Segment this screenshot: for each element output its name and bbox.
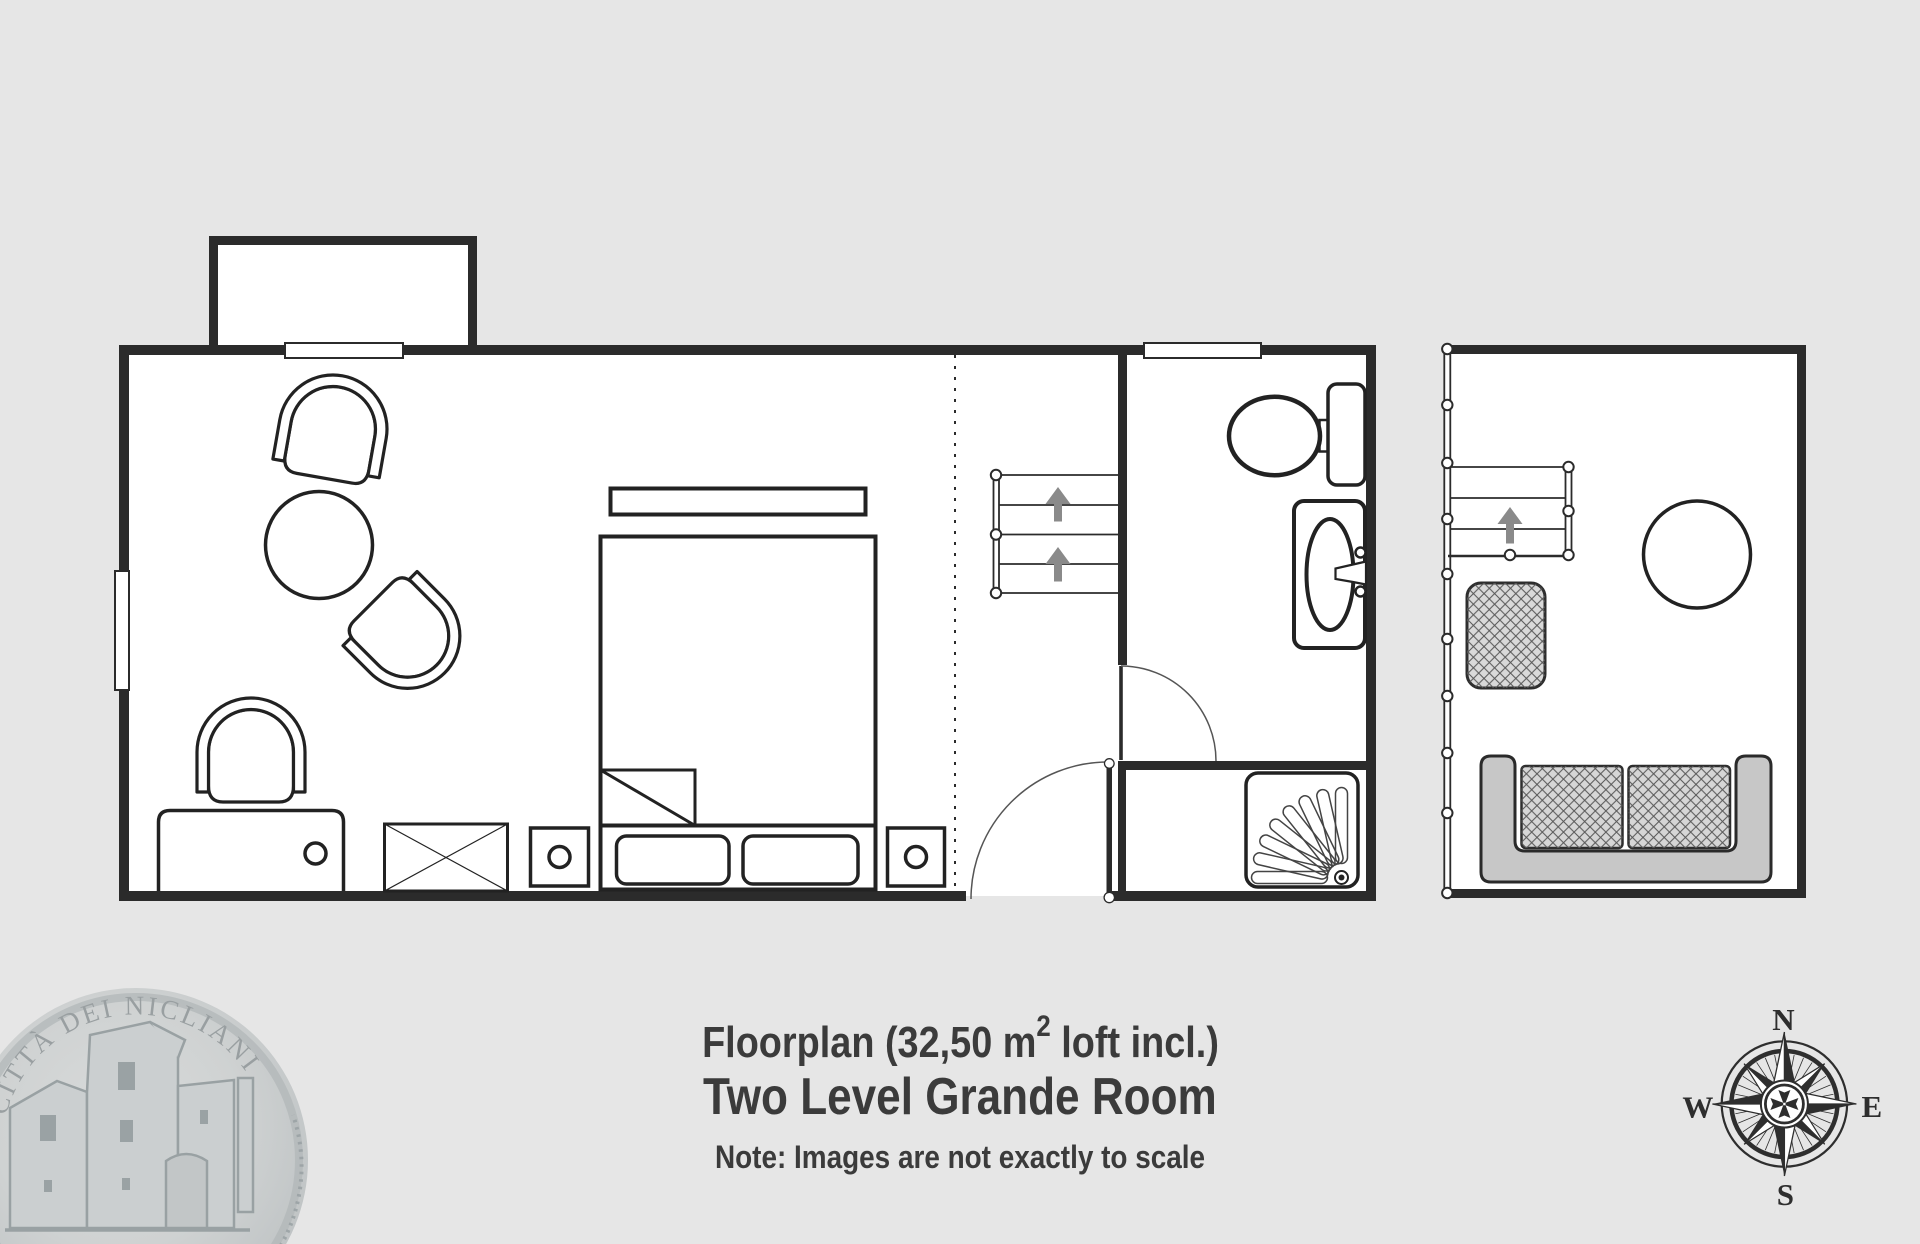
svg-text:S: S	[1777, 1177, 1794, 1212]
